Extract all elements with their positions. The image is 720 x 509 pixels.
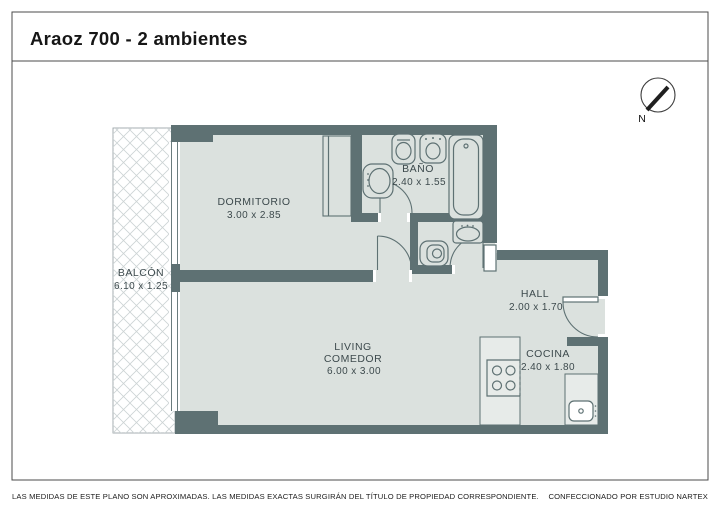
room-label-bano: BAÑO <box>402 162 434 175</box>
north-compass: N <box>638 78 675 125</box>
wall-top-left-block <box>171 125 213 142</box>
wall-right-lower <box>598 337 608 434</box>
kitchen-counter-peninsula <box>480 337 520 425</box>
room-label-living: LIVING <box>334 341 371 353</box>
toilet-icon <box>392 134 415 164</box>
room-label-balcon: BALCÓN <box>118 266 164 279</box>
wall-bath-bottom-left <box>351 213 378 222</box>
bathtub-icon <box>449 135 483 219</box>
wall-dormitorio-living <box>171 270 373 282</box>
page-title: Araoz 700 - 2 ambientes <box>30 28 248 49</box>
footer-credit: CONFECCIONADO POR ESTUDIO NARTEX <box>548 492 708 501</box>
room-dims-dormitorio: 3.00 x 2.85 <box>227 210 281 221</box>
wall-right-upper <box>598 250 608 299</box>
wall-dormitorio-right <box>351 135 362 218</box>
wall-bath-block-right <box>483 125 497 243</box>
closet <box>323 136 351 216</box>
bidet-icon <box>420 134 446 163</box>
floor-plan-svg: Araoz 700 - 2 ambientes N <box>0 0 720 509</box>
floor-plan-page: Araoz 700 - 2 ambientes N <box>0 0 720 509</box>
wall-bottom-left-step <box>175 411 218 434</box>
entrance-door-leaf <box>563 297 598 302</box>
wc-sink-icon <box>453 221 483 243</box>
room-label-cocina: COCINA <box>526 348 570 360</box>
room-dims-balcon: 6.10 x 1.25 <box>114 281 168 292</box>
room-label-comedor: COMEDOR <box>324 353 382 365</box>
room-dims-bano: 2.40 x 1.55 <box>392 177 446 188</box>
closet-outline <box>323 136 351 216</box>
footer-disclaimer: LAS MEDIDAS DE ESTE PLANO SON APROXIMADA… <box>12 492 539 501</box>
room-dims-hall: 2.00 x 1.70 <box>509 302 563 313</box>
kitchen-sink-icon <box>569 401 596 421</box>
wc-door-leaf <box>484 245 496 271</box>
bath-sink-icon <box>363 164 393 198</box>
wall-hall-cocina-stub <box>567 337 608 346</box>
wall-bottom <box>175 425 608 434</box>
room-dims-living: 6.00 x 3.00 <box>327 366 381 377</box>
room-label-hall: HALL <box>521 288 549 300</box>
wall-hall-top <box>497 250 608 260</box>
compass-north-label: N <box>638 113 646 125</box>
room-dims-cocina: 2.40 x 1.80 <box>521 362 575 373</box>
room-label-dormitorio: DORMITORIO <box>217 196 290 208</box>
wall-top <box>175 125 497 135</box>
wc-toilet-icon <box>420 241 448 266</box>
wall-left-mid-block <box>171 264 180 292</box>
